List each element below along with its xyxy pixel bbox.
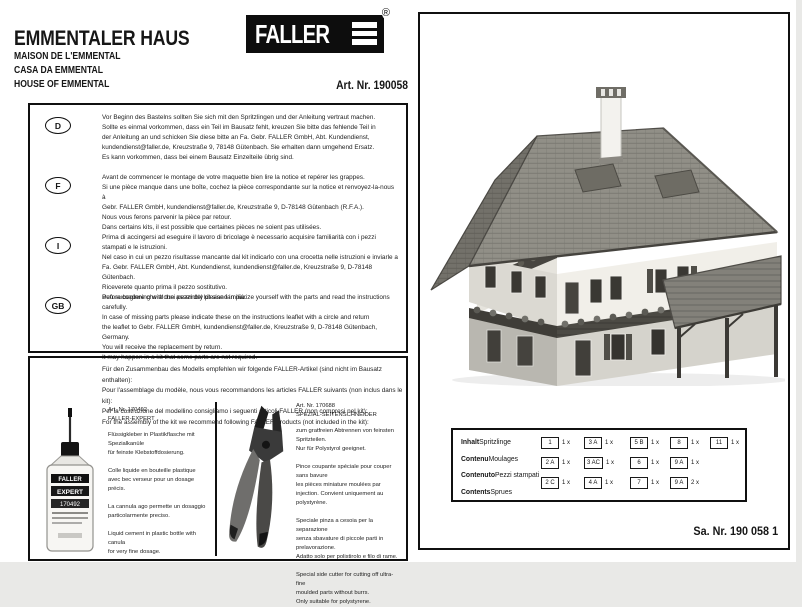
notice-text-french: Avant de commencer le montage de votre m… xyxy=(102,173,398,233)
glue-bottle-photo: FALLER EXPERT 170492 xyxy=(38,406,102,554)
sprue-cell: 5 B1 x xyxy=(630,437,659,449)
sprue-cell: 71 x xyxy=(630,477,659,489)
product-cutter-name: SPEZIAL-SEITENSCHNEIDER xyxy=(296,411,402,420)
label-fr: ContenuMoulages xyxy=(461,451,539,468)
recommended-products-box: Für den Zusammenbau des Modells empfehle… xyxy=(28,356,408,561)
notice-english: GB Before beginning with the assembly pl… xyxy=(30,293,406,362)
sprue-cell: 2 A1 x xyxy=(541,457,570,469)
bottle-label-brand: FALLER xyxy=(58,477,82,483)
page-title: EMMENTALER HAUS xyxy=(14,27,190,51)
notice-text-german: Vor Beginn des Bastelns sollten Sie sich… xyxy=(102,113,398,163)
sprue-cell: 2 C1 x xyxy=(541,477,570,489)
label-en: ContentsSprues xyxy=(461,484,539,501)
article-number: Art. Nr. 190058 xyxy=(266,80,408,92)
logo-stripes-icon xyxy=(352,22,377,45)
side-cutter-photo xyxy=(223,400,293,558)
contents-table: InhaltSpritzlinge ContenuMoulages Conten… xyxy=(451,428,747,502)
registered-trademark-icon: ® xyxy=(382,8,390,19)
subtitle-it: CASA DA EMMENTAL xyxy=(14,65,103,76)
photo-frame: InhaltSpritzlinge ContenuMoulages Conten… xyxy=(418,12,790,550)
sprue-cell: 4 A1 x xyxy=(584,477,613,489)
sprue-cell: 11 x xyxy=(541,437,570,449)
label-de: InhaltSpritzlinge xyxy=(461,434,539,451)
faller-logo-text: FALLER xyxy=(255,19,329,50)
notices-box: D Vor Beginn des Bastelns sollten Sie si… xyxy=(28,103,408,353)
bottle-label-number: 170492 xyxy=(60,502,81,508)
faller-logo: FALLER ® xyxy=(246,15,384,53)
sprue-cell: 9 A1 x xyxy=(670,457,699,469)
sprue-cell: 3 AC1 x xyxy=(584,457,614,469)
subtitle-en: HOUSE OF EMMENTAL xyxy=(14,79,109,90)
sa-number: Sa. Nr. 190 058 1 xyxy=(693,524,778,538)
label-it: ContenutoPezzi stampati xyxy=(461,467,539,484)
product-glue-description: Flüssigkleber in Plastikflasche mit Spez… xyxy=(108,431,212,557)
subtitle-fr: MAISON DE L'EMMENTAL xyxy=(14,51,121,62)
product-cutter-text: Art. Nr. 170688 SPEZIAL-SEITENSCHNEIDER … xyxy=(296,402,402,607)
sprue-cell: 9 A2 x xyxy=(670,477,699,489)
sprue-cell: 3 A1 x xyxy=(584,437,613,449)
sprue-cell: 81 x xyxy=(670,437,699,449)
leaflet-sheet: EMMENTALER HAUS MAISON DE L'EMMENTAL CAS… xyxy=(0,0,796,562)
column-divider xyxy=(215,402,217,556)
product-glue-name: FALLER-EXPERT xyxy=(108,415,212,424)
product-cutter-art-number: Art. Nr. 170688 xyxy=(296,402,402,411)
lang-badge-gb: GB xyxy=(45,297,71,314)
house-photo xyxy=(425,84,785,386)
lang-badge-d: D xyxy=(45,117,71,134)
product-glue-art-number: Art. Nr. 170492 xyxy=(108,406,212,415)
chimney xyxy=(596,87,626,164)
lang-badge-f: F xyxy=(45,177,71,194)
product-glue-text: Art. Nr. 170492 FALLER-EXPERT Flüssigkle… xyxy=(108,406,212,557)
notice-german: D Vor Beginn des Bastelns sollten Sie si… xyxy=(30,113,406,163)
product-cutter-description: zum gratfreien Abtrennen von feinsten Sp… xyxy=(296,427,402,607)
sprue-cell: 61 x xyxy=(630,457,659,469)
contents-table-labels: InhaltSpritzlinge ContenuMoulages Conten… xyxy=(461,434,539,500)
bottle-label-name: EXPERT xyxy=(57,489,83,496)
notice-french: F Avant de commencer le montage de votre… xyxy=(30,173,406,233)
sprue-cell: 111 x xyxy=(710,437,739,449)
lang-badge-i: I xyxy=(45,237,71,254)
notice-text-english: Before beginning with the assembly pleas… xyxy=(102,293,398,362)
